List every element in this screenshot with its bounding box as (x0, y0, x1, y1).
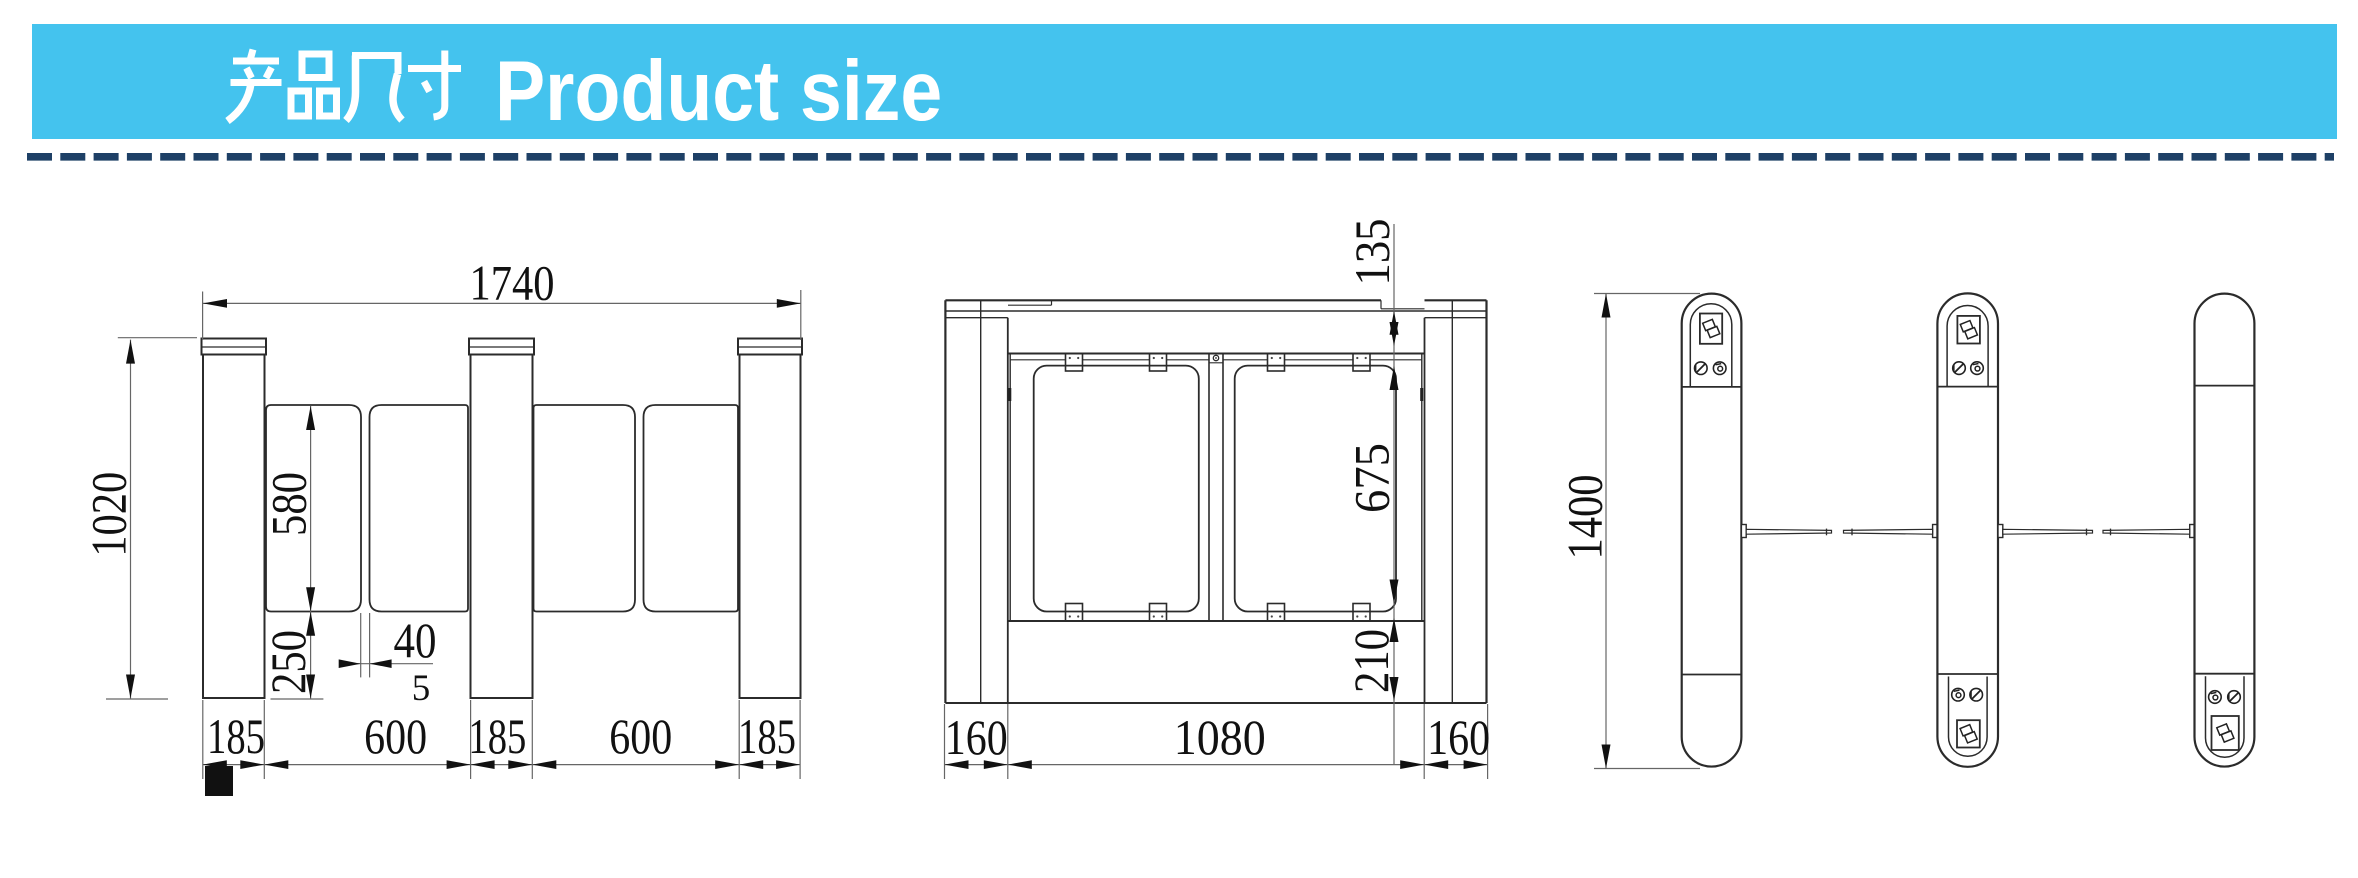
svg-text:675: 675 (1343, 443, 1399, 513)
svg-text:580: 580 (261, 472, 317, 536)
svg-text:250: 250 (260, 630, 316, 694)
svg-text:1400: 1400 (1557, 475, 1613, 560)
svg-text:5: 5 (412, 668, 431, 709)
svg-text:Product size: Product size (495, 44, 942, 139)
svg-text:1080: 1080 (1174, 709, 1266, 765)
svg-text:1020: 1020 (81, 472, 137, 557)
svg-text:135: 135 (1344, 219, 1400, 286)
svg-text:210: 210 (1343, 629, 1399, 693)
svg-text:160: 160 (945, 709, 1008, 765)
svg-text:600: 600 (609, 708, 672, 764)
svg-text:185: 185 (468, 708, 526, 764)
svg-text:1740: 1740 (470, 255, 555, 311)
svg-text:40: 40 (394, 612, 437, 668)
svg-text:600: 600 (364, 708, 427, 764)
svg-text:185: 185 (207, 708, 265, 764)
svg-text:160: 160 (1427, 709, 1490, 765)
svg-text:185: 185 (738, 708, 796, 764)
